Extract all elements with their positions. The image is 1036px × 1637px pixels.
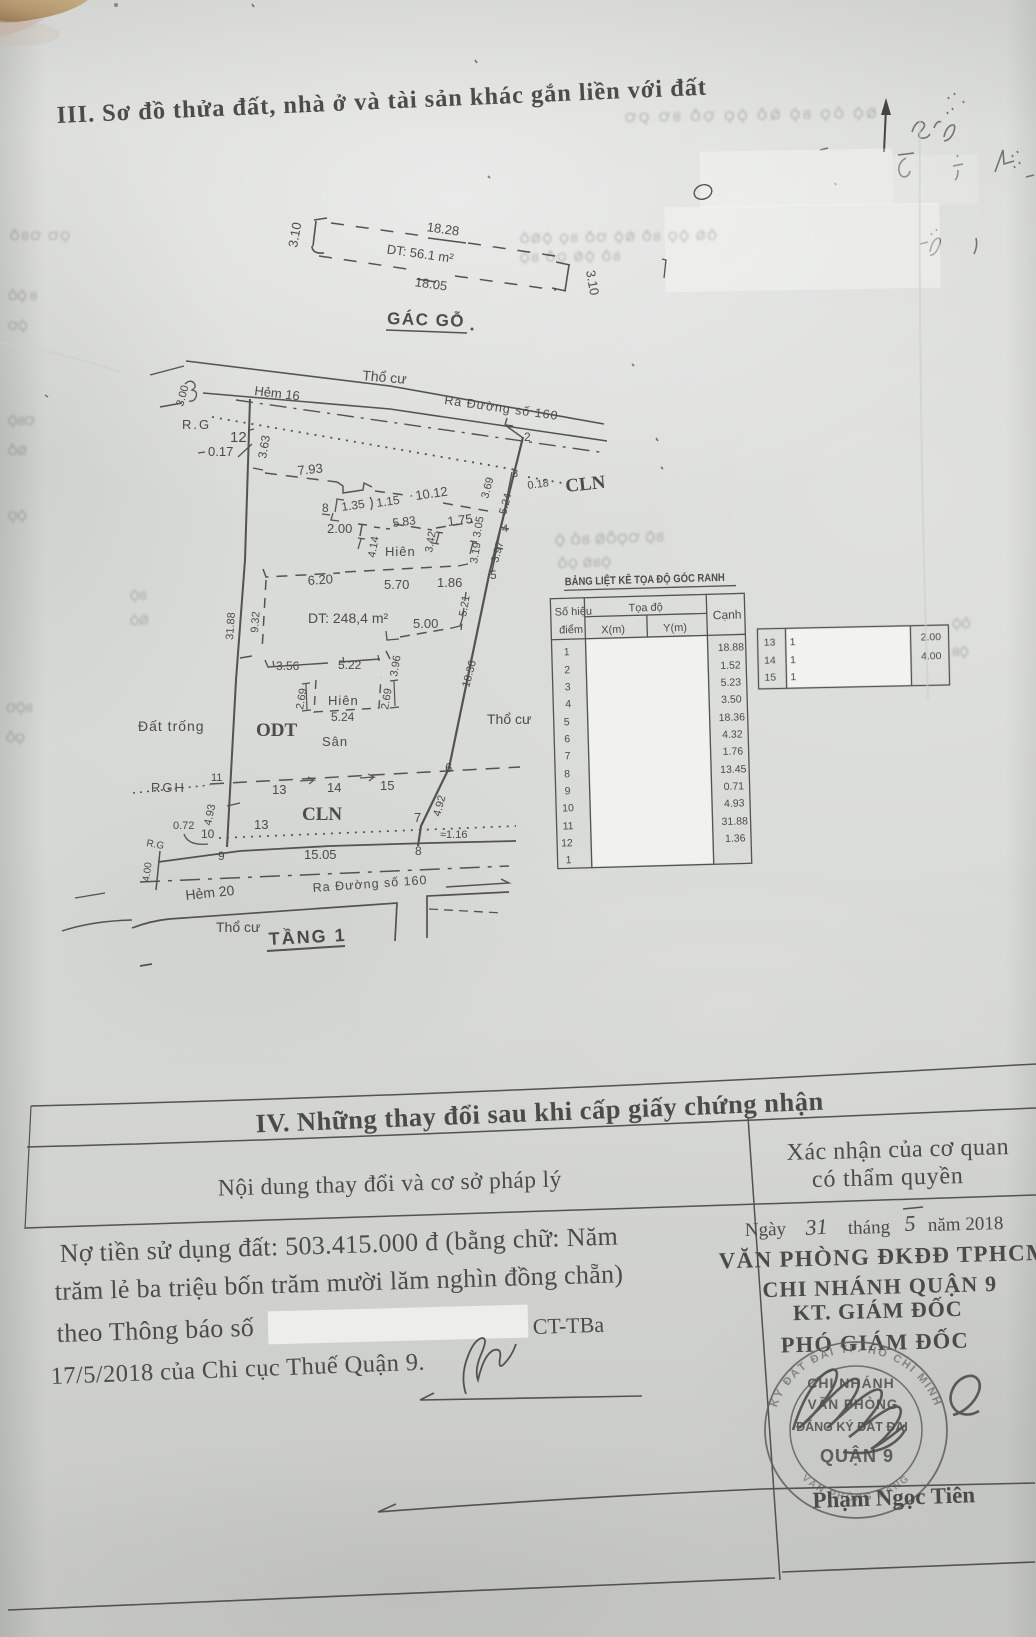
svg-text:2.00: 2.00 bbox=[327, 521, 352, 536]
svg-text:8: 8 bbox=[415, 844, 422, 858]
svg-text:7: 7 bbox=[565, 750, 571, 762]
svg-text:1: 1 bbox=[790, 671, 796, 683]
svg-text:ȰǬ Ȣ: ȰǬ Ȣ bbox=[8, 288, 37, 303]
svg-text:theo Thông báo số: theo Thông báo số bbox=[56, 1313, 254, 1348]
svg-text:4.00: 4.00 bbox=[921, 650, 942, 662]
svg-text:Thổ cư: Thổ cư bbox=[216, 919, 260, 935]
svg-text:1.35: 1.35 bbox=[340, 497, 365, 514]
svg-text:ǬȢ ȬǪ ǾǬ ȰȢ: ǬȢ ȬǪ ǾǬ ȰȢ bbox=[520, 248, 623, 265]
svg-text:11: 11 bbox=[211, 772, 222, 784]
svg-text:7: 7 bbox=[414, 810, 421, 825]
svg-text:31.88: 31.88 bbox=[224, 612, 238, 640]
svg-text:9: 9 bbox=[565, 785, 571, 797]
svg-text:Cạnh: Cạnh bbox=[713, 607, 742, 622]
svg-text:3.50: 3.50 bbox=[721, 693, 742, 706]
svg-text:5.70: 5.70 bbox=[384, 577, 409, 592]
svg-text:4.32: 4.32 bbox=[722, 728, 743, 741]
svg-text:13: 13 bbox=[764, 637, 776, 649]
svg-text:Phạm Ngọc Tiên: Phạm Ngọc Tiên bbox=[812, 1482, 976, 1513]
svg-text:Hiên: Hiên bbox=[328, 693, 359, 708]
svg-text:KT. GIÁM ĐỐC: KT. GIÁM ĐỐC bbox=[793, 1296, 963, 1325]
svg-text:1.76: 1.76 bbox=[722, 745, 743, 758]
svg-text:0.71: 0.71 bbox=[723, 780, 744, 793]
svg-text:3.19: 3.19 bbox=[468, 541, 484, 564]
svg-text:1: 1 bbox=[564, 646, 570, 658]
svg-text:12: 12 bbox=[561, 837, 573, 849]
svg-text:3.05: 3.05 bbox=[471, 515, 487, 538]
svg-text:BẢNG LIỆT KÊ TỌA ĐỘ GÓC RANH: BẢNG LIỆT KÊ TỌA ĐỘ GÓC RANH bbox=[565, 571, 725, 588]
svg-text:6: 6 bbox=[445, 760, 452, 775]
svg-text:3.56: 3.56 bbox=[276, 659, 300, 673]
svg-text:4.14: 4.14 bbox=[366, 535, 382, 558]
svg-text:1.36: 1.36 bbox=[725, 832, 746, 845]
svg-text:ǪǬ: ǪǬ bbox=[8, 509, 27, 523]
svg-text:Y(m): Y(m) bbox=[663, 622, 687, 635]
svg-text:15: 15 bbox=[380, 778, 394, 793]
svg-text:0.18: 0.18 bbox=[527, 477, 550, 492]
svg-text:3.63: 3.63 bbox=[255, 434, 273, 460]
svg-text:3.00: 3.00 bbox=[174, 384, 191, 408]
svg-text:3.10: 3.10 bbox=[285, 221, 304, 249]
svg-text:3.97: 3.97 bbox=[489, 540, 506, 564]
svg-text:4: 4 bbox=[565, 698, 571, 710]
svg-text:Ra Đường số 160: Ra Đường số 160 bbox=[312, 873, 428, 895]
svg-text:Hẻm 20: Hẻm 20 bbox=[185, 882, 236, 903]
svg-text:Thổ cư: Thổ cư bbox=[487, 711, 531, 727]
svg-text:13: 13 bbox=[272, 782, 286, 797]
svg-text:IV. Những thay đổi sau khi cấp: IV. Những thay đổi sau khi cấp giấy chứn… bbox=[255, 1086, 824, 1139]
svg-text:Hẻm 16: Hẻm 16 bbox=[254, 383, 301, 403]
svg-text:3.42: 3.42 bbox=[423, 530, 439, 553]
svg-text:Đất trống: Đất trống bbox=[138, 718, 205, 734]
svg-text:CT-TBa: CT-TBa bbox=[532, 1312, 604, 1339]
svg-text:14: 14 bbox=[764, 655, 776, 667]
svg-text:ǬȢƠ: ǬȢƠ bbox=[8, 414, 36, 428]
svg-text:1: 1 bbox=[790, 654, 796, 666]
svg-text:Xác nhận của cơ quan: Xác nhận của cơ quan bbox=[786, 1134, 1009, 1166]
svg-text:8: 8 bbox=[322, 501, 329, 515]
svg-text:6.20: 6.20 bbox=[307, 571, 333, 588]
svg-text:năm 2018: năm 2018 bbox=[928, 1213, 1004, 1236]
svg-text:1: 1 bbox=[790, 636, 796, 648]
svg-text:Ǭ ȰȢ ǾȬǪƠ ǬȢ: Ǭ ȰȢ ǾȬǪƠ ǬȢ bbox=[555, 529, 666, 548]
svg-text:R.G: R.G bbox=[145, 838, 165, 852]
svg-text:3.69: 3.69 bbox=[479, 476, 496, 500]
svg-text:Ra Đường số 160: Ra Đường số 160 bbox=[444, 393, 560, 423]
svg-text:ǬȰ: ǬȰ bbox=[952, 616, 971, 631]
svg-text:1: 1 bbox=[565, 854, 571, 866]
svg-text:ȬȢƠ ƠǪ: ȬȢƠ ƠǪ bbox=[10, 228, 72, 243]
svg-text:2: 2 bbox=[564, 664, 570, 676]
svg-text:5: 5 bbox=[564, 716, 570, 728]
svg-text:5.83: 5.83 bbox=[392, 513, 417, 530]
svg-text:5.00: 5.00 bbox=[413, 616, 438, 631]
svg-text:11: 11 bbox=[562, 820, 573, 832]
svg-text:5.24: 5.24 bbox=[331, 710, 355, 724]
svg-text:Số hiệu: Số hiệu bbox=[555, 606, 593, 619]
svg-text:VĂN PHÒNG ĐKĐĐ TPHCM: VĂN PHÒNG ĐKĐĐ TPHCM bbox=[718, 1239, 1036, 1274]
svg-text:RGH: RGH bbox=[151, 780, 186, 795]
svg-text:4.93: 4.93 bbox=[724, 797, 745, 810]
svg-text:Nội dung thay đổi và cơ sở phá: Nội dung thay đổi và cơ sở pháp lý bbox=[218, 1167, 562, 1202]
svg-text:1.86: 1.86 bbox=[437, 575, 462, 590]
svg-text:ȬǾ: ȬǾ bbox=[8, 443, 27, 458]
svg-text:ǬȢ: ǬȢ bbox=[130, 588, 147, 603]
svg-text:điểm: điểm bbox=[559, 624, 583, 637]
svg-text:Hiên: Hiên bbox=[385, 544, 416, 559]
svg-text:6: 6 bbox=[564, 733, 570, 745]
svg-text:≈1.16: ≈1.16 bbox=[440, 829, 467, 841]
svg-text:3.10: 3.10 bbox=[583, 269, 602, 297]
svg-text:31: 31 bbox=[804, 1214, 829, 1241]
svg-text:13.45: 13.45 bbox=[720, 763, 747, 776]
svg-text:CLN: CLN bbox=[302, 804, 342, 825]
svg-text:ODT: ODT bbox=[256, 720, 298, 741]
svg-text:3: 3 bbox=[565, 681, 571, 693]
svg-text:13: 13 bbox=[254, 817, 268, 832]
svg-text:5.23: 5.23 bbox=[721, 676, 742, 689]
svg-text:5: 5 bbox=[904, 1210, 917, 1236]
svg-text:ƠQ ƠȢ ȬỢ ǪǬ ȰǾ ǬȢ ǪȰ ǬǾ: ƠQ ƠȢ ȬỢ ǪǬ ȰǾ ǬȢ ǪȰ ǬǾ bbox=[625, 106, 880, 125]
svg-text:ƠǬȢ: ƠǬȢ bbox=[6, 701, 33, 715]
svg-text:14: 14 bbox=[327, 780, 341, 795]
svg-text:DT: 248,4 m²: DT: 248,4 m² bbox=[308, 610, 388, 626]
svg-text:15: 15 bbox=[764, 672, 776, 684]
svg-text:18.28: 18.28 bbox=[426, 219, 460, 238]
svg-text:10.12: 10.12 bbox=[414, 484, 448, 503]
svg-text:5: 5 bbox=[490, 568, 497, 582]
svg-text:GÁC GỖ: GÁC GỖ bbox=[387, 309, 466, 331]
svg-text:ȰǾ: ȰǾ bbox=[130, 612, 149, 628]
svg-text:X(m): X(m) bbox=[601, 624, 625, 637]
svg-text:ȬǪ ǾȢǬ: ȬǪ ǾȢǬ bbox=[558, 554, 612, 571]
svg-text:18.36: 18.36 bbox=[460, 659, 479, 689]
svg-text:CLN: CLN bbox=[564, 472, 606, 497]
svg-text:5.24: 5.24 bbox=[497, 492, 514, 516]
svg-text:III. Sơ đồ thửa đất, nhà ở và: III. Sơ đồ thửa đất, nhà ở và tài sản kh… bbox=[56, 74, 707, 129]
svg-text:ƠǬ: ƠǬ bbox=[8, 319, 28, 333]
svg-text:tháng: tháng bbox=[848, 1217, 891, 1239]
svg-text:0.17: 0.17 bbox=[208, 444, 233, 459]
svg-text:7.93: 7.93 bbox=[297, 460, 324, 478]
svg-text:1.15: 1.15 bbox=[375, 493, 400, 510]
svg-text:10: 10 bbox=[562, 802, 574, 814]
svg-text:4: 4 bbox=[502, 523, 508, 535]
svg-text:18.88: 18.88 bbox=[718, 641, 745, 654]
svg-text:15.05: 15.05 bbox=[304, 847, 337, 862]
svg-text:DT: 56.1 m²: DT: 56.1 m² bbox=[386, 241, 455, 265]
svg-text:có thẩm quyền: có thẩm quyền bbox=[812, 1163, 964, 1193]
svg-text:2.69: 2.69 bbox=[379, 687, 395, 710]
svg-text:5.22: 5.22 bbox=[338, 658, 362, 672]
svg-text:4.00: 4.00 bbox=[141, 861, 155, 882]
svg-text:R.G: R.G bbox=[182, 417, 211, 432]
svg-text:trăm lẻ ba triệu bốn trăm mười: trăm lẻ ba triệu bốn trăm mười lăm nghìn… bbox=[54, 1259, 623, 1306]
svg-text:9.32: 9.32 bbox=[249, 611, 262, 633]
svg-text:8: 8 bbox=[564, 768, 570, 780]
svg-text:Ngày: Ngày bbox=[745, 1219, 787, 1241]
svg-text:3.96: 3.96 bbox=[388, 654, 404, 677]
svg-text:1.75: 1.75 bbox=[447, 511, 474, 529]
svg-text:2.00: 2.00 bbox=[920, 631, 941, 643]
svg-text:Tọa độ: Tọa độ bbox=[628, 602, 663, 615]
svg-text:2: 2 bbox=[524, 430, 531, 444]
svg-text:31.88: 31.88 bbox=[721, 815, 748, 828]
svg-text:18.05: 18.05 bbox=[414, 274, 448, 293]
svg-text:4.93: 4.93 bbox=[202, 803, 218, 826]
svg-text:0.72: 0.72 bbox=[173, 820, 194, 832]
svg-text:Sân: Sân bbox=[322, 734, 348, 749]
svg-text:ȢǬ: ȢǬ bbox=[952, 645, 969, 659]
svg-text:9: 9 bbox=[218, 849, 225, 863]
svg-text:10: 10 bbox=[201, 827, 215, 841]
svg-text:ȬǪ: ȬǪ bbox=[6, 730, 25, 745]
svg-text:5.21: 5.21 bbox=[457, 594, 473, 617]
svg-text:1.52: 1.52 bbox=[720, 659, 741, 672]
svg-text:3: 3 bbox=[512, 468, 518, 480]
svg-text:TẦNG 1: TẦNG 1 bbox=[268, 924, 347, 949]
svg-text:18.36: 18.36 bbox=[719, 711, 746, 724]
svg-text:17/5/2018 của Chi cục Thuế Quậ: 17/5/2018 của Chi cục Thuế Quận 9. bbox=[50, 1349, 425, 1390]
